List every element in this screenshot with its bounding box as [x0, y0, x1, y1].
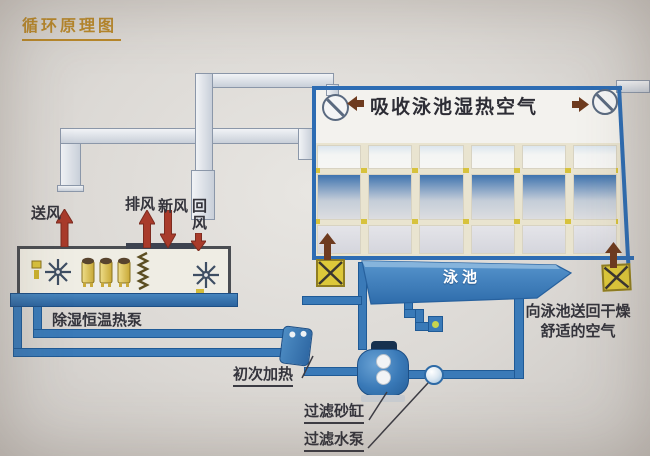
valve-fitting-icon: [428, 316, 443, 332]
return-air-note: 向泳池送回干燥 舒适的空气: [514, 302, 642, 342]
diffuser-x-icon: [318, 261, 343, 285]
coil-icon: [139, 253, 147, 289]
glass-panel: [419, 174, 463, 220]
supply-duct-vertical: [60, 141, 81, 189]
compressor-icon: [82, 258, 94, 287]
unit-base: [10, 293, 238, 307]
sand-filter-tank: [357, 341, 409, 403]
absorb-arrow-left-icon: [347, 96, 364, 111]
diagram-canvas: 循环原理图 吸收泳池湿热空气: [0, 0, 650, 456]
filter-part-icon: [34, 270, 39, 279]
glass-panel: [522, 145, 566, 169]
exhaust-air-label: 排风: [125, 193, 155, 214]
exhaust-fan-left-icon: [322, 94, 349, 121]
supply-duct-elbow: [298, 128, 313, 160]
compressor-icon: [118, 258, 130, 287]
sand-filter-label: 过滤砂缸: [304, 400, 364, 424]
glass-panel: [368, 145, 412, 169]
supply-diffuser-left: [316, 259, 345, 287]
filter-pump-label: 过滤水泵: [304, 428, 364, 452]
tank-port-icon: [376, 370, 391, 385]
supply-duct-flange: [57, 185, 84, 192]
fan-icon: [193, 262, 219, 288]
glass-panel: [317, 145, 361, 169]
filter-pump: [424, 365, 444, 385]
pool-label: 泳池: [443, 266, 481, 287]
glass-panel: [471, 174, 515, 220]
return-air-label: 回风: [188, 198, 209, 232]
hall-frame-left: [312, 86, 316, 259]
primary-heater: [279, 325, 313, 366]
diffuser-arrow-left-icon: [319, 233, 336, 260]
return-air-arrow-icon: [191, 233, 206, 251]
supply-air-label: 送风: [31, 202, 61, 223]
fresh-air-label: 新风: [158, 195, 188, 216]
primary-heater-label: 初次加热: [233, 363, 293, 387]
glass-panel: [522, 174, 566, 220]
tank-port-icon: [376, 354, 391, 369]
page-title: 循环原理图: [22, 12, 121, 41]
unit-name-label: 除湿恒温热泵: [52, 309, 142, 330]
unit-internals: [20, 249, 228, 295]
compressor-icon: [100, 258, 112, 287]
supply-duct-horizontal: [60, 128, 313, 144]
diffuser-x-icon: [603, 265, 629, 289]
absorb-air-label: 吸收泳池湿热空气: [370, 92, 538, 119]
glass-panel: [471, 145, 515, 169]
glass-panel: [573, 145, 617, 169]
glass-panel: [419, 145, 463, 169]
pool-hall-glazing: [314, 143, 620, 257]
dehumidifier-unit: [17, 246, 231, 298]
condenser-pipe-horizontal-a: [13, 348, 297, 357]
tank-feet: [361, 395, 405, 402]
exhaust-fan-right-icon: [592, 89, 618, 115]
filter-part-icon: [32, 261, 41, 268]
return-air-note-line2: 舒适的空气: [514, 322, 642, 342]
diffuser-arrow-right-icon: [605, 242, 622, 268]
return-duct-vertical: [195, 73, 213, 172]
exhaust-air-arrow-icon: [139, 210, 155, 248]
hall-frame-top: [312, 86, 622, 90]
absorb-arrow-right-icon: [572, 97, 589, 112]
panel-joint-dots: [316, 219, 618, 224]
filter-to-riser-pipe: [402, 370, 524, 379]
panel-joint-dots: [316, 168, 618, 173]
glass-panel: [573, 174, 617, 220]
glass-panel: [368, 174, 412, 220]
return-air-note-line1: 向泳池送回干燥: [514, 302, 642, 322]
glass-panel: [317, 174, 361, 220]
fan-icon: [45, 259, 71, 285]
condenser-pipe-horizontal-b: [33, 329, 286, 338]
